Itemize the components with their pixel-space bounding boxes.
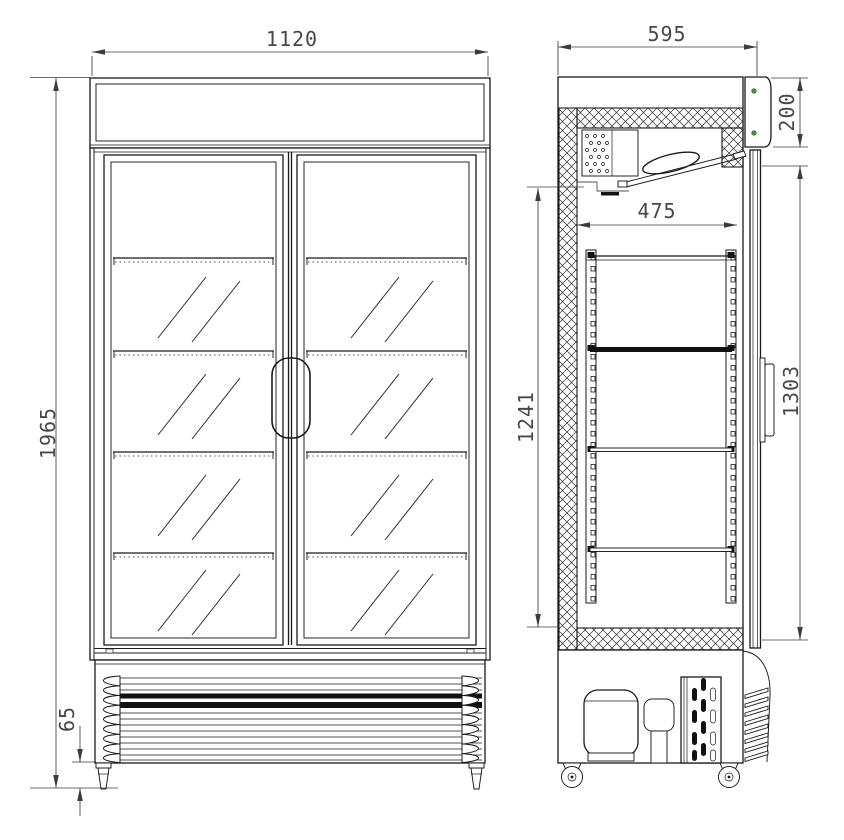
door-handle-front (272, 358, 310, 438)
caster-side-right (719, 763, 740, 788)
dim-canopy-height: 200 (771, 78, 808, 147)
compressor (584, 690, 638, 761)
hinge-dot-top (752, 89, 757, 94)
right-door (297, 155, 476, 645)
dim-label-door-height: 1303 (779, 365, 803, 417)
rear-louver-panel (743, 651, 770, 762)
caster-front-right (469, 763, 484, 789)
side-view (558, 77, 774, 788)
louver-grille (95, 660, 485, 763)
dim-label-overall-depth: 595 (647, 22, 686, 46)
dim-caster-height: 65 (55, 706, 96, 816)
dim-overall-width: 1120 (92, 27, 488, 76)
dim-label-interior-depth: 475 (637, 199, 676, 223)
fridge-technical-drawing: 1120 1965 65 595 (0, 0, 844, 840)
dim-label-overall-height: 1965 (36, 407, 60, 459)
hinge-dot-bottom (752, 131, 757, 136)
caster-front-left (96, 763, 111, 789)
front-view (90, 78, 490, 789)
hinge-cover (745, 77, 771, 147)
door-handle-side (760, 358, 774, 442)
louver-end-curls-right (462, 676, 479, 763)
dim-label-canopy-height: 200 (775, 92, 799, 131)
louver-end-curls-left (103, 676, 120, 763)
dim-label-caster-height: 65 (55, 706, 79, 732)
evaporator-unit (582, 130, 638, 176)
dim-label-interior-height: 1241 (514, 391, 538, 443)
caster-side-left (562, 763, 583, 788)
canopy-front (90, 78, 490, 148)
side-door (750, 150, 761, 648)
left-door (104, 155, 283, 645)
dim-label-overall-width: 1120 (266, 27, 318, 51)
condenser (681, 677, 721, 763)
technical-drawing-page: 1120 1965 65 595 (0, 0, 844, 840)
dim-overall-depth: 595 (558, 22, 757, 76)
machine-compartment (558, 650, 770, 788)
